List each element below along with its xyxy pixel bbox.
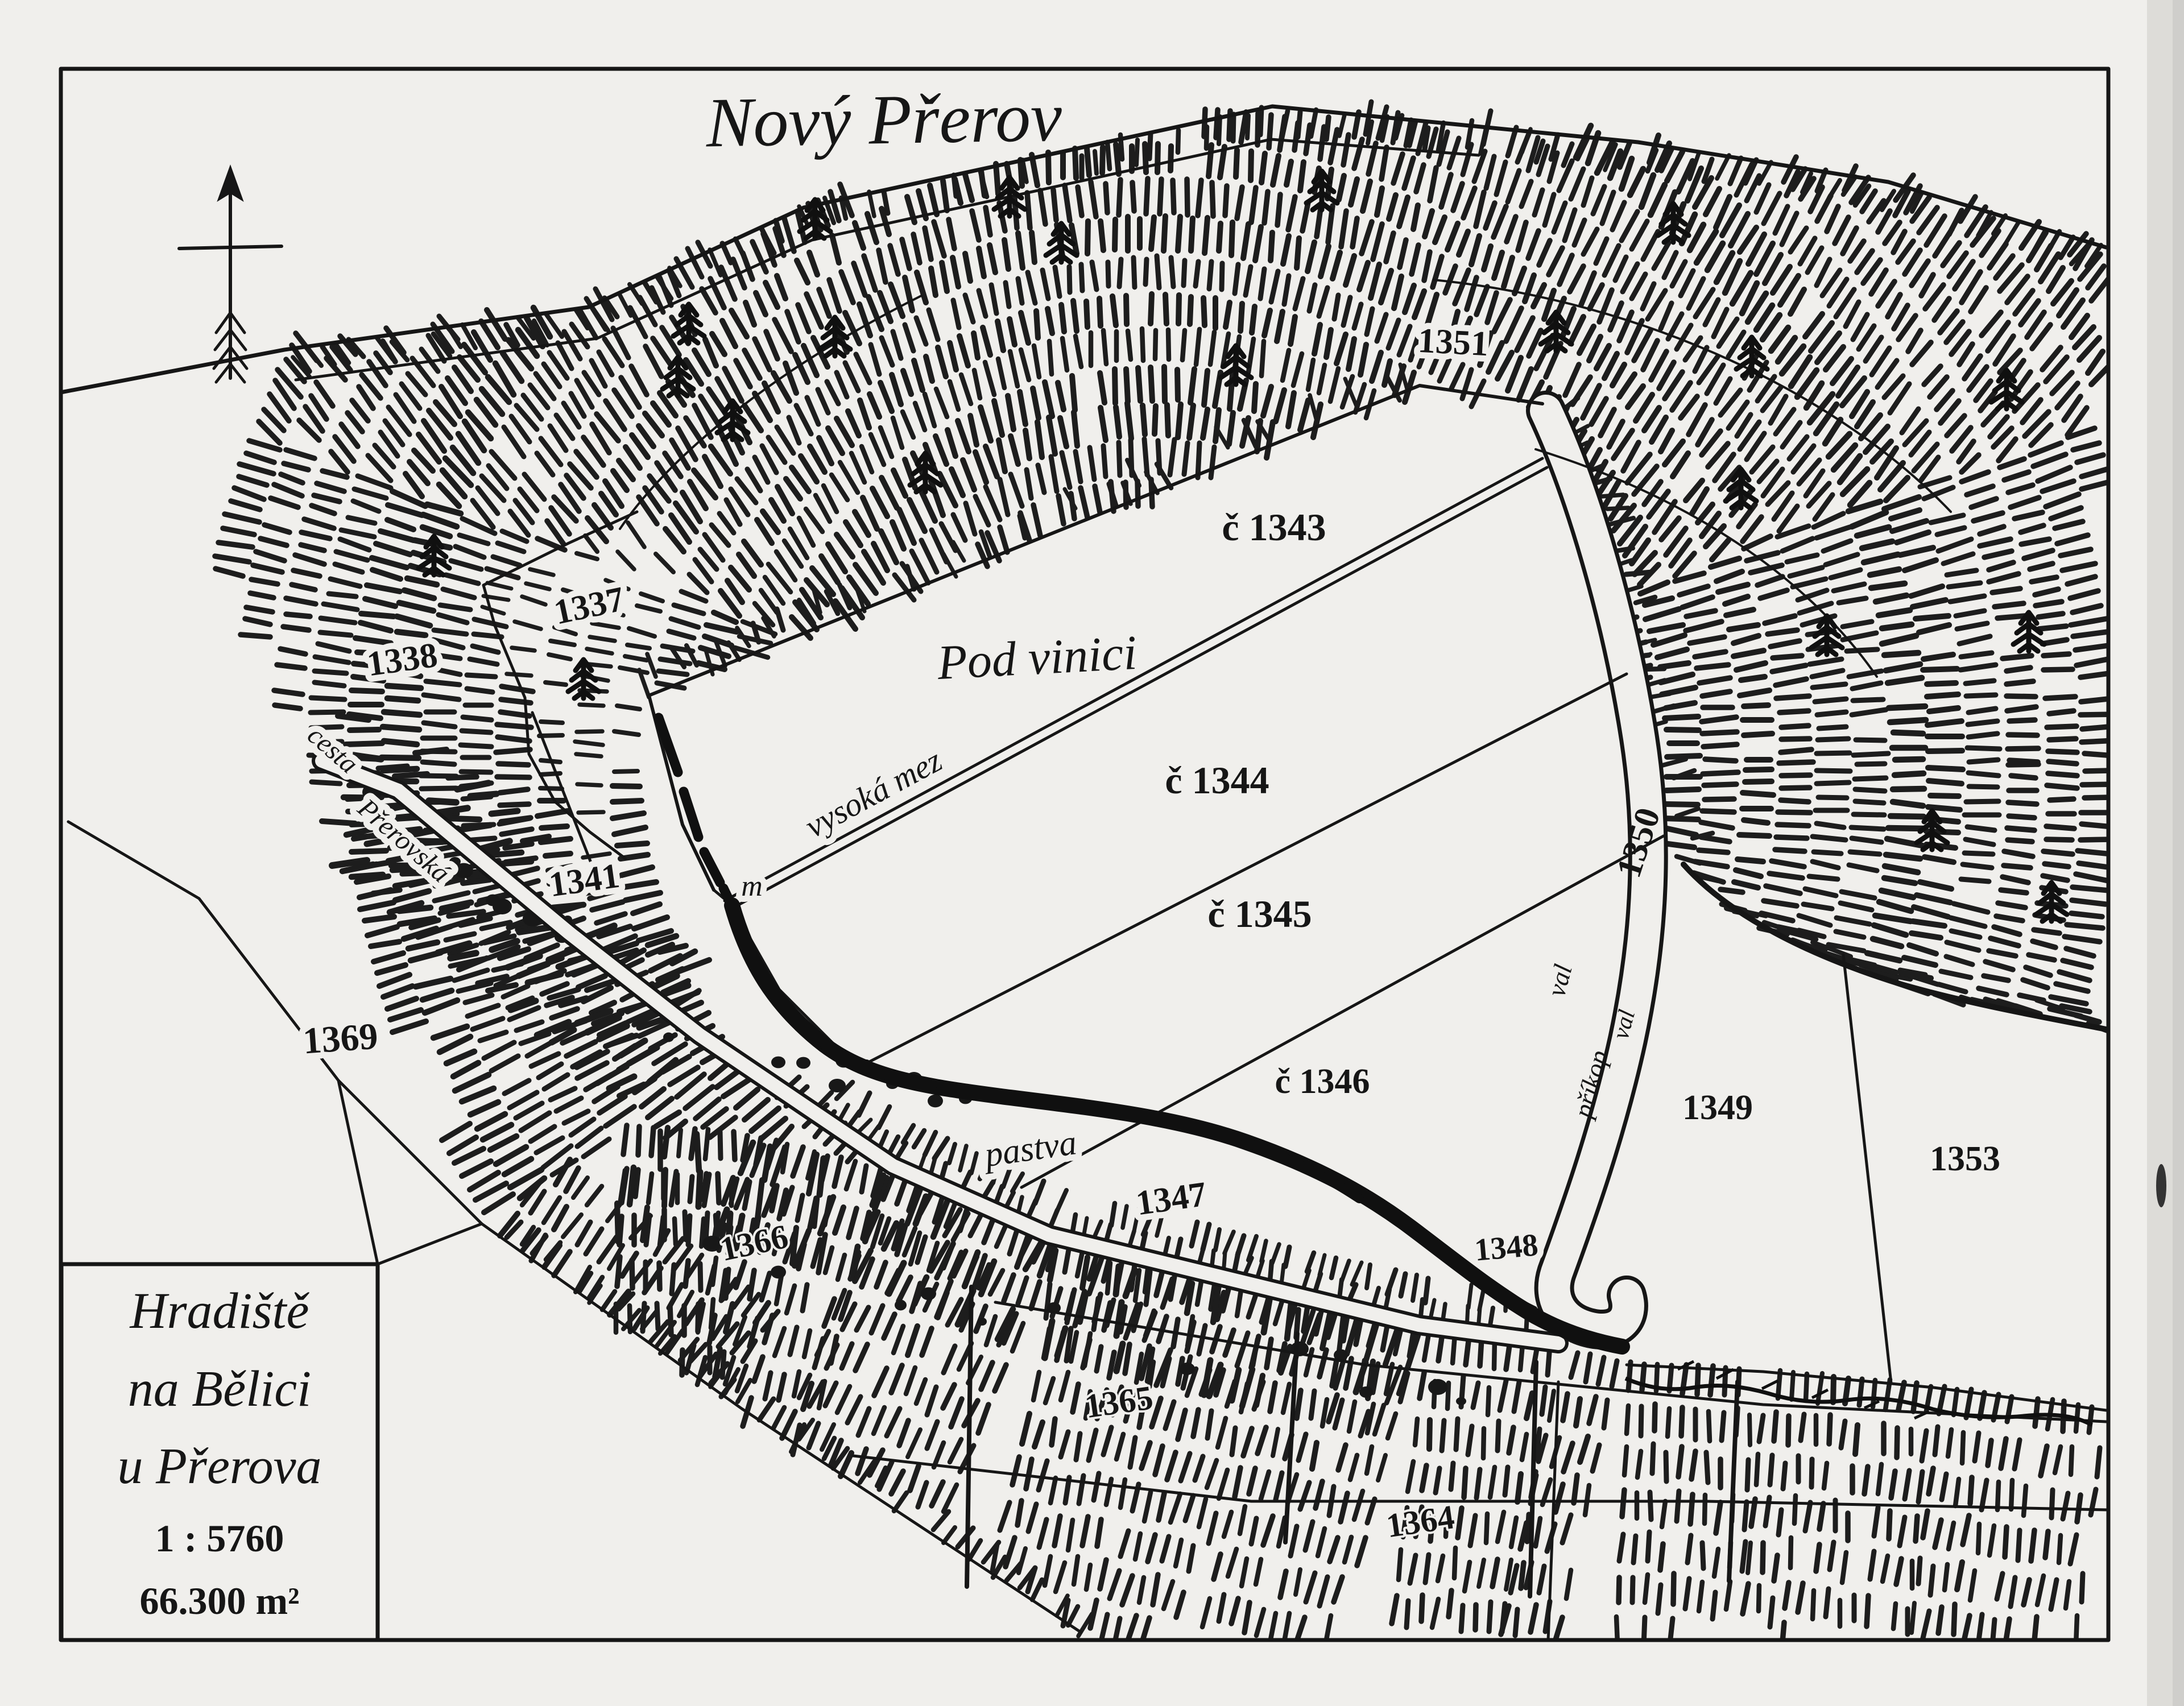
svg-text:Nový Přerov: Nový Přerov bbox=[705, 78, 1063, 162]
svg-text:na Bělici: na Bělici bbox=[128, 1361, 311, 1417]
svg-text:1 : 5760: 1 : 5760 bbox=[155, 1517, 284, 1560]
svg-text:u Přerova: u Přerova bbox=[117, 1438, 321, 1494]
svg-text:1369: 1369 bbox=[301, 1016, 379, 1062]
svg-text:Hradiště: Hradiště bbox=[130, 1283, 310, 1339]
svg-text:č 1346: č 1346 bbox=[1275, 1062, 1370, 1101]
svg-text:Pod vinici: Pod vinici bbox=[936, 625, 1139, 690]
svg-text:1353: 1353 bbox=[1930, 1140, 2000, 1178]
svg-text:1349: 1349 bbox=[1682, 1088, 1753, 1127]
svg-text:č 1343: č 1343 bbox=[1222, 506, 1326, 549]
svg-text:č 1344: č 1344 bbox=[1165, 759, 1269, 802]
svg-text:1348: 1348 bbox=[1473, 1227, 1540, 1268]
svg-text:1351: 1351 bbox=[1417, 321, 1489, 363]
svg-text:66.300 m²: 66.300 m² bbox=[139, 1579, 299, 1622]
svg-text:č 1345: č 1345 bbox=[1207, 892, 1312, 935]
svg-text:m: m bbox=[741, 870, 763, 902]
